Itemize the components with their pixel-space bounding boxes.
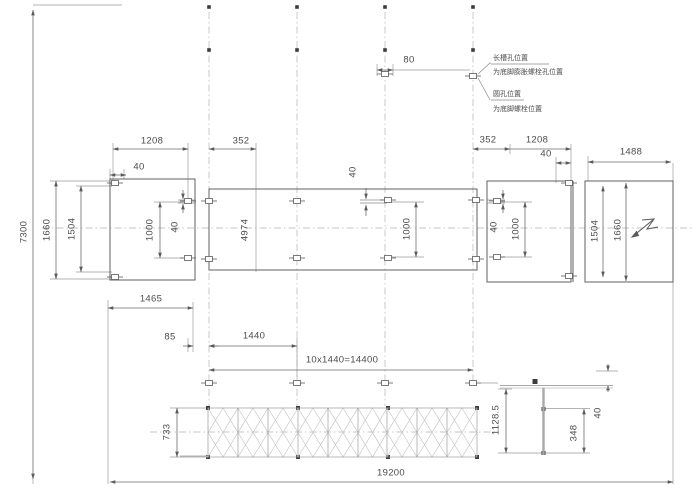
dim-1504-left: 1504 xyxy=(67,218,77,240)
post-detail xyxy=(500,386,613,456)
post-bar xyxy=(542,388,544,455)
dim-85: 85 xyxy=(164,332,175,342)
note-round-hole-desc: 为底脚螺栓位置 xyxy=(493,104,542,114)
dim-40-left-top: 40 xyxy=(133,162,144,172)
dim-40-left-inner: 40 xyxy=(170,221,180,232)
slot-detail-lines xyxy=(178,200,505,203)
dim-1488: 1488 xyxy=(620,147,642,157)
dim-1000-center: 1000 xyxy=(402,218,412,240)
dim-14400: 10x1440=14400 xyxy=(306,355,378,365)
dim-348: 348 xyxy=(569,425,579,442)
note-round-hole-title: 圆孔位置 xyxy=(493,89,521,99)
north-arrow-icon xyxy=(632,219,658,237)
dim-352-left: 352 xyxy=(233,136,250,146)
dim-1660-left: 1660 xyxy=(42,219,52,241)
dimension-lines xyxy=(33,10,673,482)
dim-overall-width: 19200 xyxy=(377,468,405,478)
dim-1208-right: 1208 xyxy=(526,135,548,145)
right-mid-panel-outline xyxy=(487,181,571,282)
dim-40-center: 40 xyxy=(348,166,358,177)
dim-352-right: 352 xyxy=(480,135,497,145)
dim-733: 733 xyxy=(162,424,172,441)
extension-lines xyxy=(33,5,673,484)
braced-strip xyxy=(180,408,477,457)
note-long-slot-title: 长槽孔位置 xyxy=(493,53,528,63)
dim-40-right-inner: 40 xyxy=(489,221,499,232)
cad-drawing-sheet: 7300 19200 1660 1504 1208 352 40 1000 40… xyxy=(0,0,700,490)
dim-1440: 1440 xyxy=(243,331,265,341)
dim-overall-height: 7300 xyxy=(19,221,29,243)
dim-1128-5: 1128.5 xyxy=(491,405,501,435)
dim-40-bottom: 40 xyxy=(593,407,603,418)
dim-1504-right: 1504 xyxy=(590,220,600,242)
dim-1000-left: 1000 xyxy=(145,219,155,241)
dim-1000-right: 1000 xyxy=(511,218,521,240)
note-long-slot-desc: 为底脚膨胀螺栓孔位置 xyxy=(493,67,563,77)
dim-4974: 4974 xyxy=(240,219,250,241)
dim-1208-left: 1208 xyxy=(141,136,163,146)
dim-1660-right: 1660 xyxy=(613,219,623,241)
strip-hatch xyxy=(208,408,477,457)
dim-80: 80 xyxy=(403,55,414,65)
dim-40-right-top: 40 xyxy=(540,149,551,159)
dim-1465: 1465 xyxy=(140,294,162,304)
